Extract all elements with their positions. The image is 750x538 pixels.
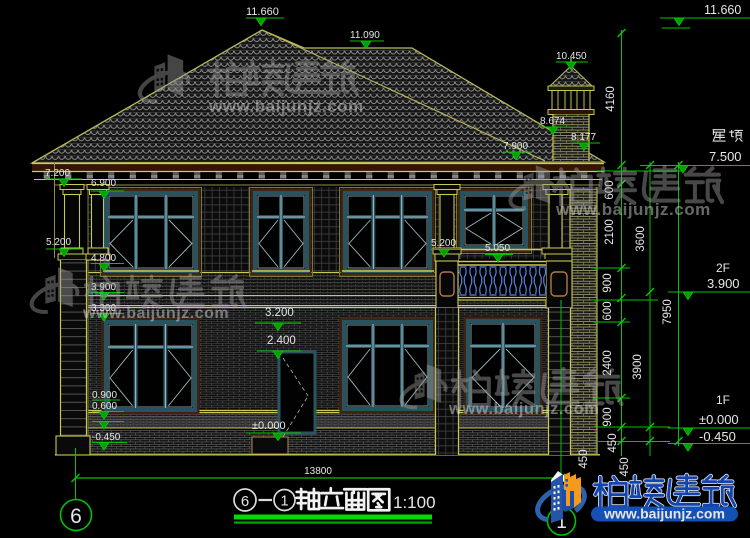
svg-text:7.200: 7.200 <box>45 168 70 179</box>
svg-text:www.baijunjz.com: www.baijunjz.com <box>448 400 599 418</box>
svg-text:900: 900 <box>602 407 614 426</box>
svg-text:450: 450 <box>578 449 590 468</box>
svg-text:0.900: 0.900 <box>92 390 117 401</box>
svg-text:3900: 3900 <box>632 354 644 380</box>
svg-text:-0.450: -0.450 <box>92 432 121 443</box>
svg-text:11.090: 11.090 <box>350 30 380 41</box>
svg-text:1F: 1F <box>716 393 730 407</box>
svg-text:7950: 7950 <box>662 299 674 325</box>
svg-text:2.400: 2.400 <box>267 335 296 347</box>
svg-text:8.177: 8.177 <box>571 132 596 143</box>
svg-text:11.660: 11.660 <box>246 6 279 18</box>
svg-text:2100: 2100 <box>604 219 616 245</box>
svg-text:5.200: 5.200 <box>431 238 456 249</box>
svg-text:13800: 13800 <box>304 466 332 477</box>
svg-text:±0.000: ±0.000 <box>252 420 286 432</box>
svg-text:5.200: 5.200 <box>46 237 71 248</box>
svg-text:3600: 3600 <box>635 226 647 252</box>
svg-text:6.900: 6.900 <box>91 178 116 189</box>
svg-text:6: 6 <box>70 505 82 528</box>
svg-text:www.baijunjz.com: www.baijunjz.com <box>208 97 364 116</box>
svg-text:2F: 2F <box>716 261 730 275</box>
svg-text:11.660: 11.660 <box>704 3 741 17</box>
svg-text:www.baijunjz.com: www.baijunjz.com <box>555 200 711 219</box>
svg-text:0.600: 0.600 <box>92 401 117 412</box>
svg-text:10.450: 10.450 <box>556 51 587 62</box>
svg-text:8.674: 8.674 <box>540 116 565 127</box>
svg-text:450: 450 <box>619 457 631 476</box>
svg-text:3.900: 3.900 <box>707 276 740 291</box>
svg-text:www.baijunjz.com: www.baijunjz.com <box>603 506 725 522</box>
svg-text:7.500: 7.500 <box>709 149 742 164</box>
svg-text:-0.450: -0.450 <box>699 429 736 444</box>
svg-text:www.baijunjz.com: www.baijunjz.com <box>82 305 229 322</box>
svg-text:900: 900 <box>602 273 614 292</box>
svg-text:7.900: 7.900 <box>503 141 528 152</box>
svg-text:1:100: 1:100 <box>393 493 436 512</box>
svg-text:600: 600 <box>602 301 614 320</box>
svg-text:450: 450 <box>607 433 619 452</box>
svg-text:3.200: 3.200 <box>265 307 294 319</box>
svg-text:5.050: 5.050 <box>485 243 510 254</box>
svg-text:±0.000: ±0.000 <box>699 412 739 427</box>
svg-text:6: 6 <box>241 493 249 510</box>
svg-text:4.800: 4.800 <box>91 253 116 264</box>
svg-text:1: 1 <box>280 494 288 510</box>
svg-text:4160: 4160 <box>605 86 617 112</box>
